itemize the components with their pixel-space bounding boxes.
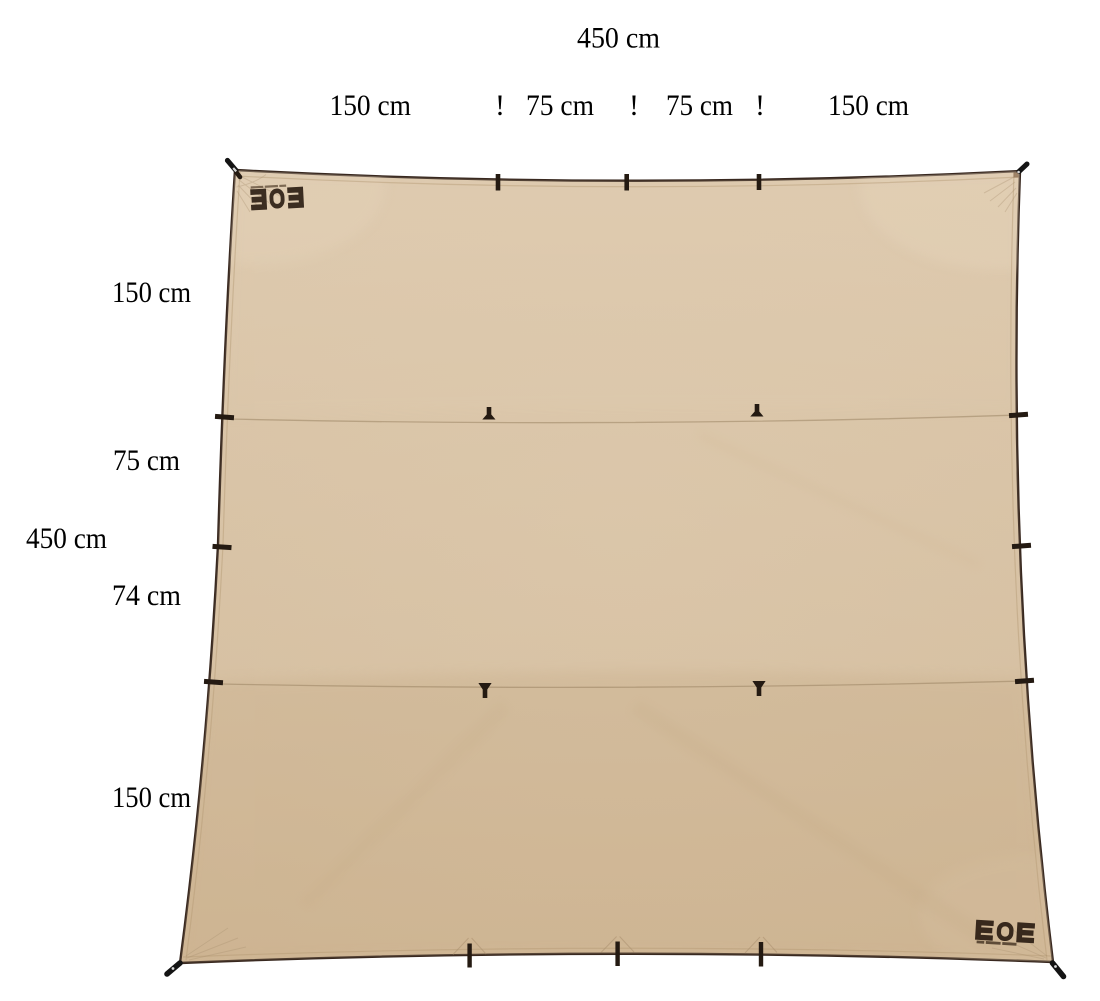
svg-text:75 cm: 75 cm [526,89,594,122]
svg-text:150 cm: 150 cm [330,89,412,122]
svg-text:!: ! [629,89,639,122]
svg-text:75 cm: 75 cm [666,89,733,122]
svg-text:150 cm: 150 cm [828,89,909,122]
svg-text:74 cm: 74 cm [112,579,181,612]
svg-text:150 cm: 150 cm [112,276,191,309]
svg-text:450 cm: 450 cm [26,522,107,555]
svg-text:450 cm: 450 cm [577,22,660,55]
svg-text:!: ! [755,89,765,122]
svg-text:150 cm: 150 cm [112,781,191,814]
svg-text:!: ! [495,89,505,122]
svg-text:75 cm: 75 cm [113,444,180,477]
